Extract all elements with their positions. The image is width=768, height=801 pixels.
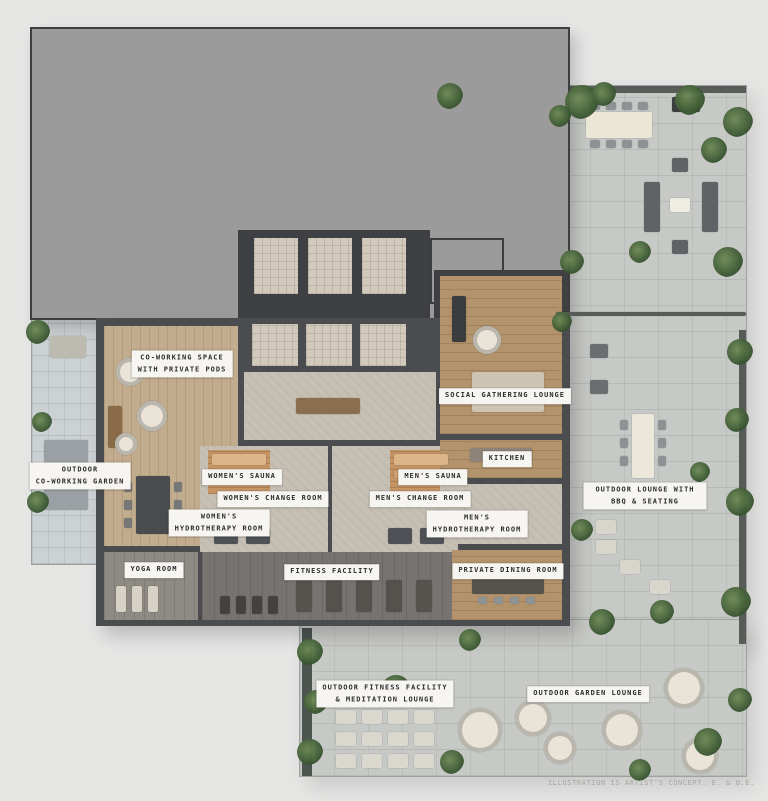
plant [690, 462, 710, 482]
chair [124, 500, 132, 510]
treadmill [416, 580, 432, 612]
chair [606, 140, 616, 148]
room-label-outdoor-co-working-garden: OUTDOOR CO-WORKING GARDEN [30, 462, 131, 489]
plant [437, 83, 463, 109]
plant [675, 85, 705, 115]
plant [297, 639, 323, 665]
plant [552, 312, 572, 332]
room-label-fitness-facility: FITNESS FACILITY [284, 564, 379, 580]
room-label-mens-hydrotherapy: MEN'S HYDROTHERAPY ROOM [427, 510, 528, 537]
chair [620, 420, 628, 430]
round-seating [664, 668, 704, 708]
chair [620, 456, 628, 466]
chair [658, 438, 666, 448]
room-label-womens-hydrotherapy: WOMEN'S HYDROTHERAPY ROOM [169, 509, 270, 536]
hydrotherapy-tub [388, 528, 412, 544]
room-label-mens-sauna: MEN'S SAUNA [398, 469, 467, 485]
private-dining-table [472, 578, 544, 594]
plant [459, 629, 481, 651]
chair [658, 420, 666, 430]
gym-equipment [236, 596, 246, 614]
gym-equipment [252, 596, 262, 614]
room-label-outdoor-garden-lounge: OUTDOOR GARDEN LOUNGE [527, 686, 649, 702]
elevator-cab-lower [360, 324, 406, 366]
gym-equipment [220, 596, 230, 614]
treadmill [296, 580, 312, 612]
room-label-outdoor-lounge-bbq: OUTDOOR LOUNGE WITH BBQ & SEATING [584, 482, 707, 509]
exercise-mat [336, 732, 356, 746]
plant [440, 750, 464, 774]
exercise-mat [388, 754, 408, 768]
exercise-mat [336, 710, 356, 724]
room-label-womens-sauna: WOMEN'S SAUNA [202, 469, 282, 485]
room-label-yoga-room: YOGA ROOM [125, 562, 184, 578]
terrace-divider [556, 312, 746, 316]
room-label-womens-change-room: WOMEN'S CHANGE ROOM [217, 491, 328, 507]
chair [590, 140, 600, 148]
outdoor-dining-table [632, 414, 654, 478]
co-working-table [136, 476, 170, 534]
outdoor-dining-table [586, 112, 652, 138]
plant [571, 519, 593, 541]
round-seating [473, 326, 501, 354]
plant [650, 600, 674, 624]
plant [592, 82, 616, 106]
chair [638, 140, 648, 148]
plant [560, 250, 584, 274]
yoga-mat [132, 586, 142, 612]
round-seating [458, 708, 502, 752]
plant [297, 739, 323, 765]
coffee-table [670, 198, 690, 212]
exercise-mat [414, 732, 434, 746]
armchair [672, 240, 688, 254]
sauna-bench [394, 454, 448, 465]
plant [629, 759, 651, 781]
chair [620, 438, 628, 448]
exercise-mat [362, 754, 382, 768]
plant [26, 320, 50, 344]
round-seating [115, 433, 137, 455]
elevator-cab-lower [306, 324, 352, 366]
treadmill [386, 580, 402, 612]
elevator-cab [308, 238, 352, 294]
lounger [596, 520, 616, 534]
plant [723, 107, 753, 137]
lounger [596, 540, 616, 554]
chair [622, 102, 632, 110]
lounger [650, 580, 670, 594]
room-label-social-gathering-lounge: SOCIAL GATHERING LOUNGE [439, 388, 571, 404]
plant [721, 587, 751, 617]
exercise-mat [336, 754, 356, 768]
exercise-mat [388, 710, 408, 724]
plant [726, 488, 754, 516]
round-seating [602, 710, 642, 750]
round-seating [137, 401, 167, 431]
garden-table [50, 336, 86, 358]
exercise-mat [414, 754, 434, 768]
outdoor-sofa [644, 182, 660, 232]
lounge-chair [590, 380, 608, 394]
chair [174, 482, 182, 492]
chair [478, 597, 487, 604]
lounge-chair [590, 344, 608, 358]
room-label-co-working-space: CO-WORKING SPACE WITH PRIVATE PODS [132, 350, 233, 377]
sauna-bench [212, 454, 266, 465]
plant [701, 137, 727, 163]
chair [510, 597, 519, 604]
artist-concept-disclaimer: ILLUSTRATION IS ARTIST'S CONCEPT. E. & O… [548, 780, 755, 787]
plant [727, 339, 753, 365]
exercise-mat [362, 732, 382, 746]
plant [27, 491, 49, 513]
plant [589, 609, 615, 635]
yoga-mat [148, 586, 158, 612]
room-label-kitchen: KITCHEN [483, 451, 532, 467]
elevator-cab [362, 238, 406, 294]
room-label-private-dining-room: PRIVATE DINING ROOM [452, 563, 563, 579]
outdoor-sofa [702, 182, 718, 232]
treadmill [356, 580, 372, 612]
room-label-mens-change-room: MEN'S CHANGE ROOM [370, 491, 471, 507]
plant [549, 105, 571, 127]
plant [713, 247, 743, 277]
plant [725, 408, 749, 432]
chair [526, 597, 535, 604]
lounger [620, 560, 640, 574]
elevator-cab-lower [252, 324, 298, 366]
exercise-mat [362, 710, 382, 724]
exercise-mat [414, 710, 434, 724]
yoga-mat [116, 586, 126, 612]
lobby-bench [296, 398, 360, 414]
bar-counter [452, 296, 466, 342]
plant [694, 728, 722, 756]
room-label-outdoor-fitness: OUTDOOR FITNESS FACILITY & MEDITATION LO… [316, 680, 453, 707]
armchair [672, 158, 688, 172]
floor-plan-illustration: CO-WORKING SPACE WITH PRIVATE PODS OUTDO… [0, 0, 768, 801]
round-seating [515, 700, 551, 736]
chair [124, 518, 132, 528]
elevator-cab [254, 238, 298, 294]
gym-equipment [268, 596, 278, 614]
plant [728, 688, 752, 712]
round-seating [544, 732, 576, 764]
plant [629, 241, 651, 263]
plant [32, 412, 52, 432]
treadmill [326, 580, 342, 612]
chair [658, 456, 666, 466]
chair [622, 140, 632, 148]
exercise-mat [388, 732, 408, 746]
outdoor-terrace-right [556, 86, 746, 644]
chair [638, 102, 648, 110]
chair [494, 597, 503, 604]
